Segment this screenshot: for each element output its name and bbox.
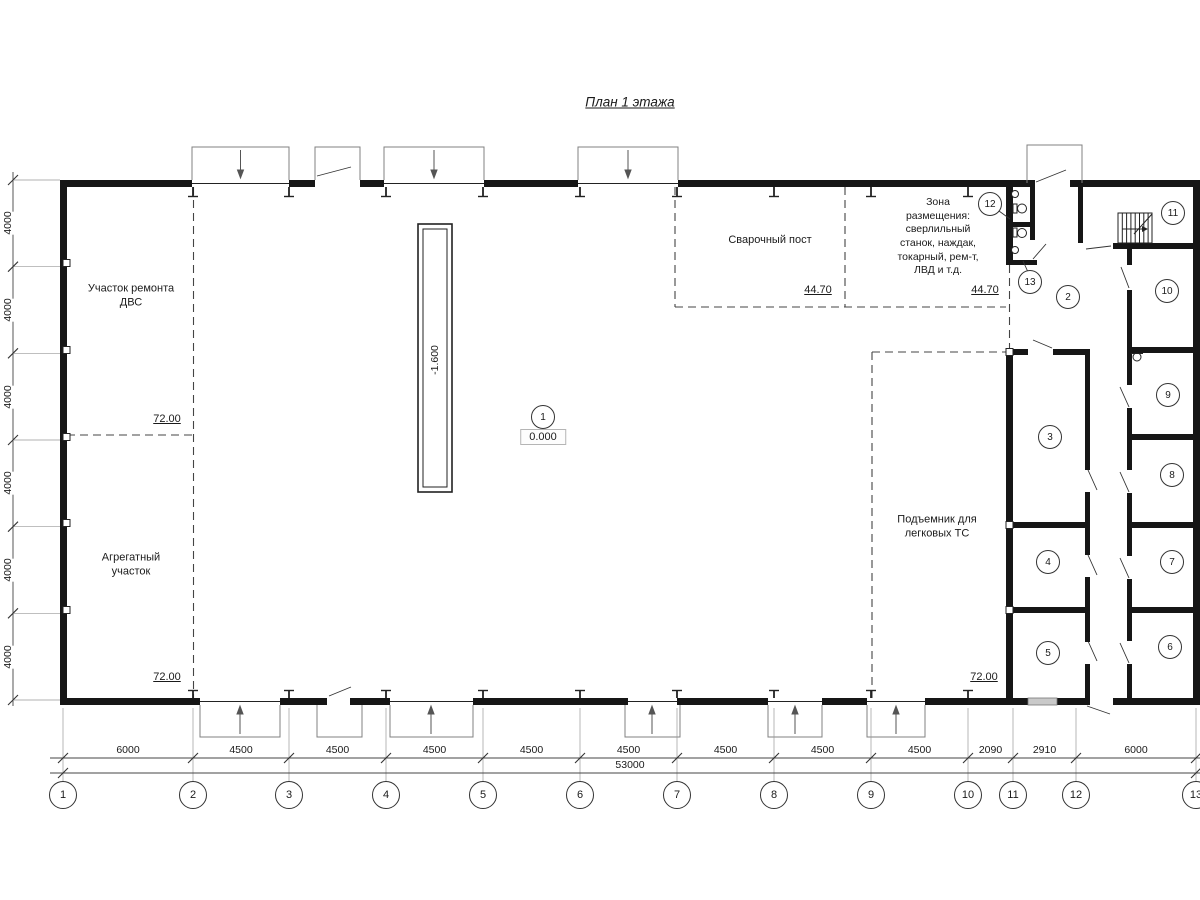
dim-segment-left: 4000	[2, 471, 14, 494]
floor-plan-sheet: План 1 этажа Участок ремонта ДВС Агрегат…	[0, 0, 1200, 900]
column-axis: 6	[566, 781, 594, 809]
dim-segment: 4500	[227, 744, 254, 756]
toilet-icon	[1013, 228, 1017, 237]
dim-segment-left: 4000	[2, 298, 14, 321]
elevation-welding-right: 44.70	[969, 284, 1001, 296]
dim-segment-left: 4000	[2, 645, 14, 668]
room-marker: 8	[1160, 463, 1184, 487]
page-title: План 1 этажа	[585, 95, 674, 110]
column-axis: 12	[1062, 781, 1090, 809]
room-marker: 1	[531, 405, 555, 429]
column-axis: 4	[372, 781, 400, 809]
stairs-icon	[1118, 213, 1152, 243]
threshold	[1028, 698, 1057, 705]
plan-drawing	[0, 0, 1200, 900]
dim-total: 53000	[613, 759, 646, 771]
dim-segment: 6000	[114, 744, 141, 756]
elevation-welding-left: 44.70	[802, 284, 834, 296]
dim-segment: 4500	[518, 744, 545, 756]
room-marker: 2	[1056, 285, 1080, 309]
dim-segment-left: 4000	[2, 385, 14, 408]
column-axis: 10	[954, 781, 982, 809]
label-welding-station: Сварочный пост	[728, 233, 811, 247]
column-axis: 8	[760, 781, 788, 809]
label-car-lift: Подъемник для легковых ТС	[897, 513, 976, 542]
room-marker: 10	[1155, 279, 1179, 303]
sink-icon	[1133, 353, 1141, 361]
column-axis: 5	[469, 781, 497, 809]
room-marker: 7	[1160, 550, 1184, 574]
room-marker: 12	[978, 192, 1002, 216]
elevation-engine-area: 72.00	[151, 413, 183, 425]
dim-segment: 4500	[906, 744, 933, 756]
floor-level-box: 0.000	[520, 429, 566, 445]
column-axis: 7	[663, 781, 691, 809]
label-assembly-area: Агрегатный участок	[102, 551, 160, 580]
dim-segment: 4500	[421, 744, 448, 756]
label-engine-repair-area: Участок ремонта ДВС	[88, 282, 174, 311]
dim-segment: 6000	[1122, 744, 1149, 756]
elevation-assembly-area: 72.00	[151, 671, 183, 683]
column-axis: 2	[179, 781, 207, 809]
label-equipment-zone: Зона размещения: сверлильный станок, наж…	[897, 196, 978, 278]
room-marker: 5	[1036, 641, 1060, 665]
column-axis: 9	[857, 781, 885, 809]
column-axis: 3	[275, 781, 303, 809]
room-marker: 13	[1018, 270, 1042, 294]
interior-walls	[1006, 180, 1200, 705]
room-marker: 3	[1038, 425, 1062, 449]
dim-segment-left: 4000	[2, 558, 14, 581]
column-axis: 11	[999, 781, 1027, 809]
dim-segment: 4500	[809, 744, 836, 756]
exterior-walls	[60, 180, 1200, 705]
room-marker: 6	[1158, 635, 1182, 659]
dim-segment-left: 4000	[2, 211, 14, 234]
elevation-lift-area: 72.00	[968, 671, 1000, 683]
column-axis: 1	[49, 781, 77, 809]
sink-icon	[1012, 191, 1019, 198]
room-marker: 9	[1156, 383, 1180, 407]
pit-depth-label: -1.600	[429, 343, 441, 377]
dim-segment: 4500	[712, 744, 739, 756]
dim-segment: 4500	[324, 744, 351, 756]
room-marker: 11	[1161, 201, 1185, 225]
dim-segment: 4500	[615, 744, 642, 756]
dim-segment: 2090	[977, 744, 1004, 756]
toilet-icon	[1013, 204, 1017, 213]
sink-icon	[1012, 247, 1019, 254]
room-marker: 4	[1036, 550, 1060, 574]
dim-segment: 2910	[1031, 744, 1058, 756]
